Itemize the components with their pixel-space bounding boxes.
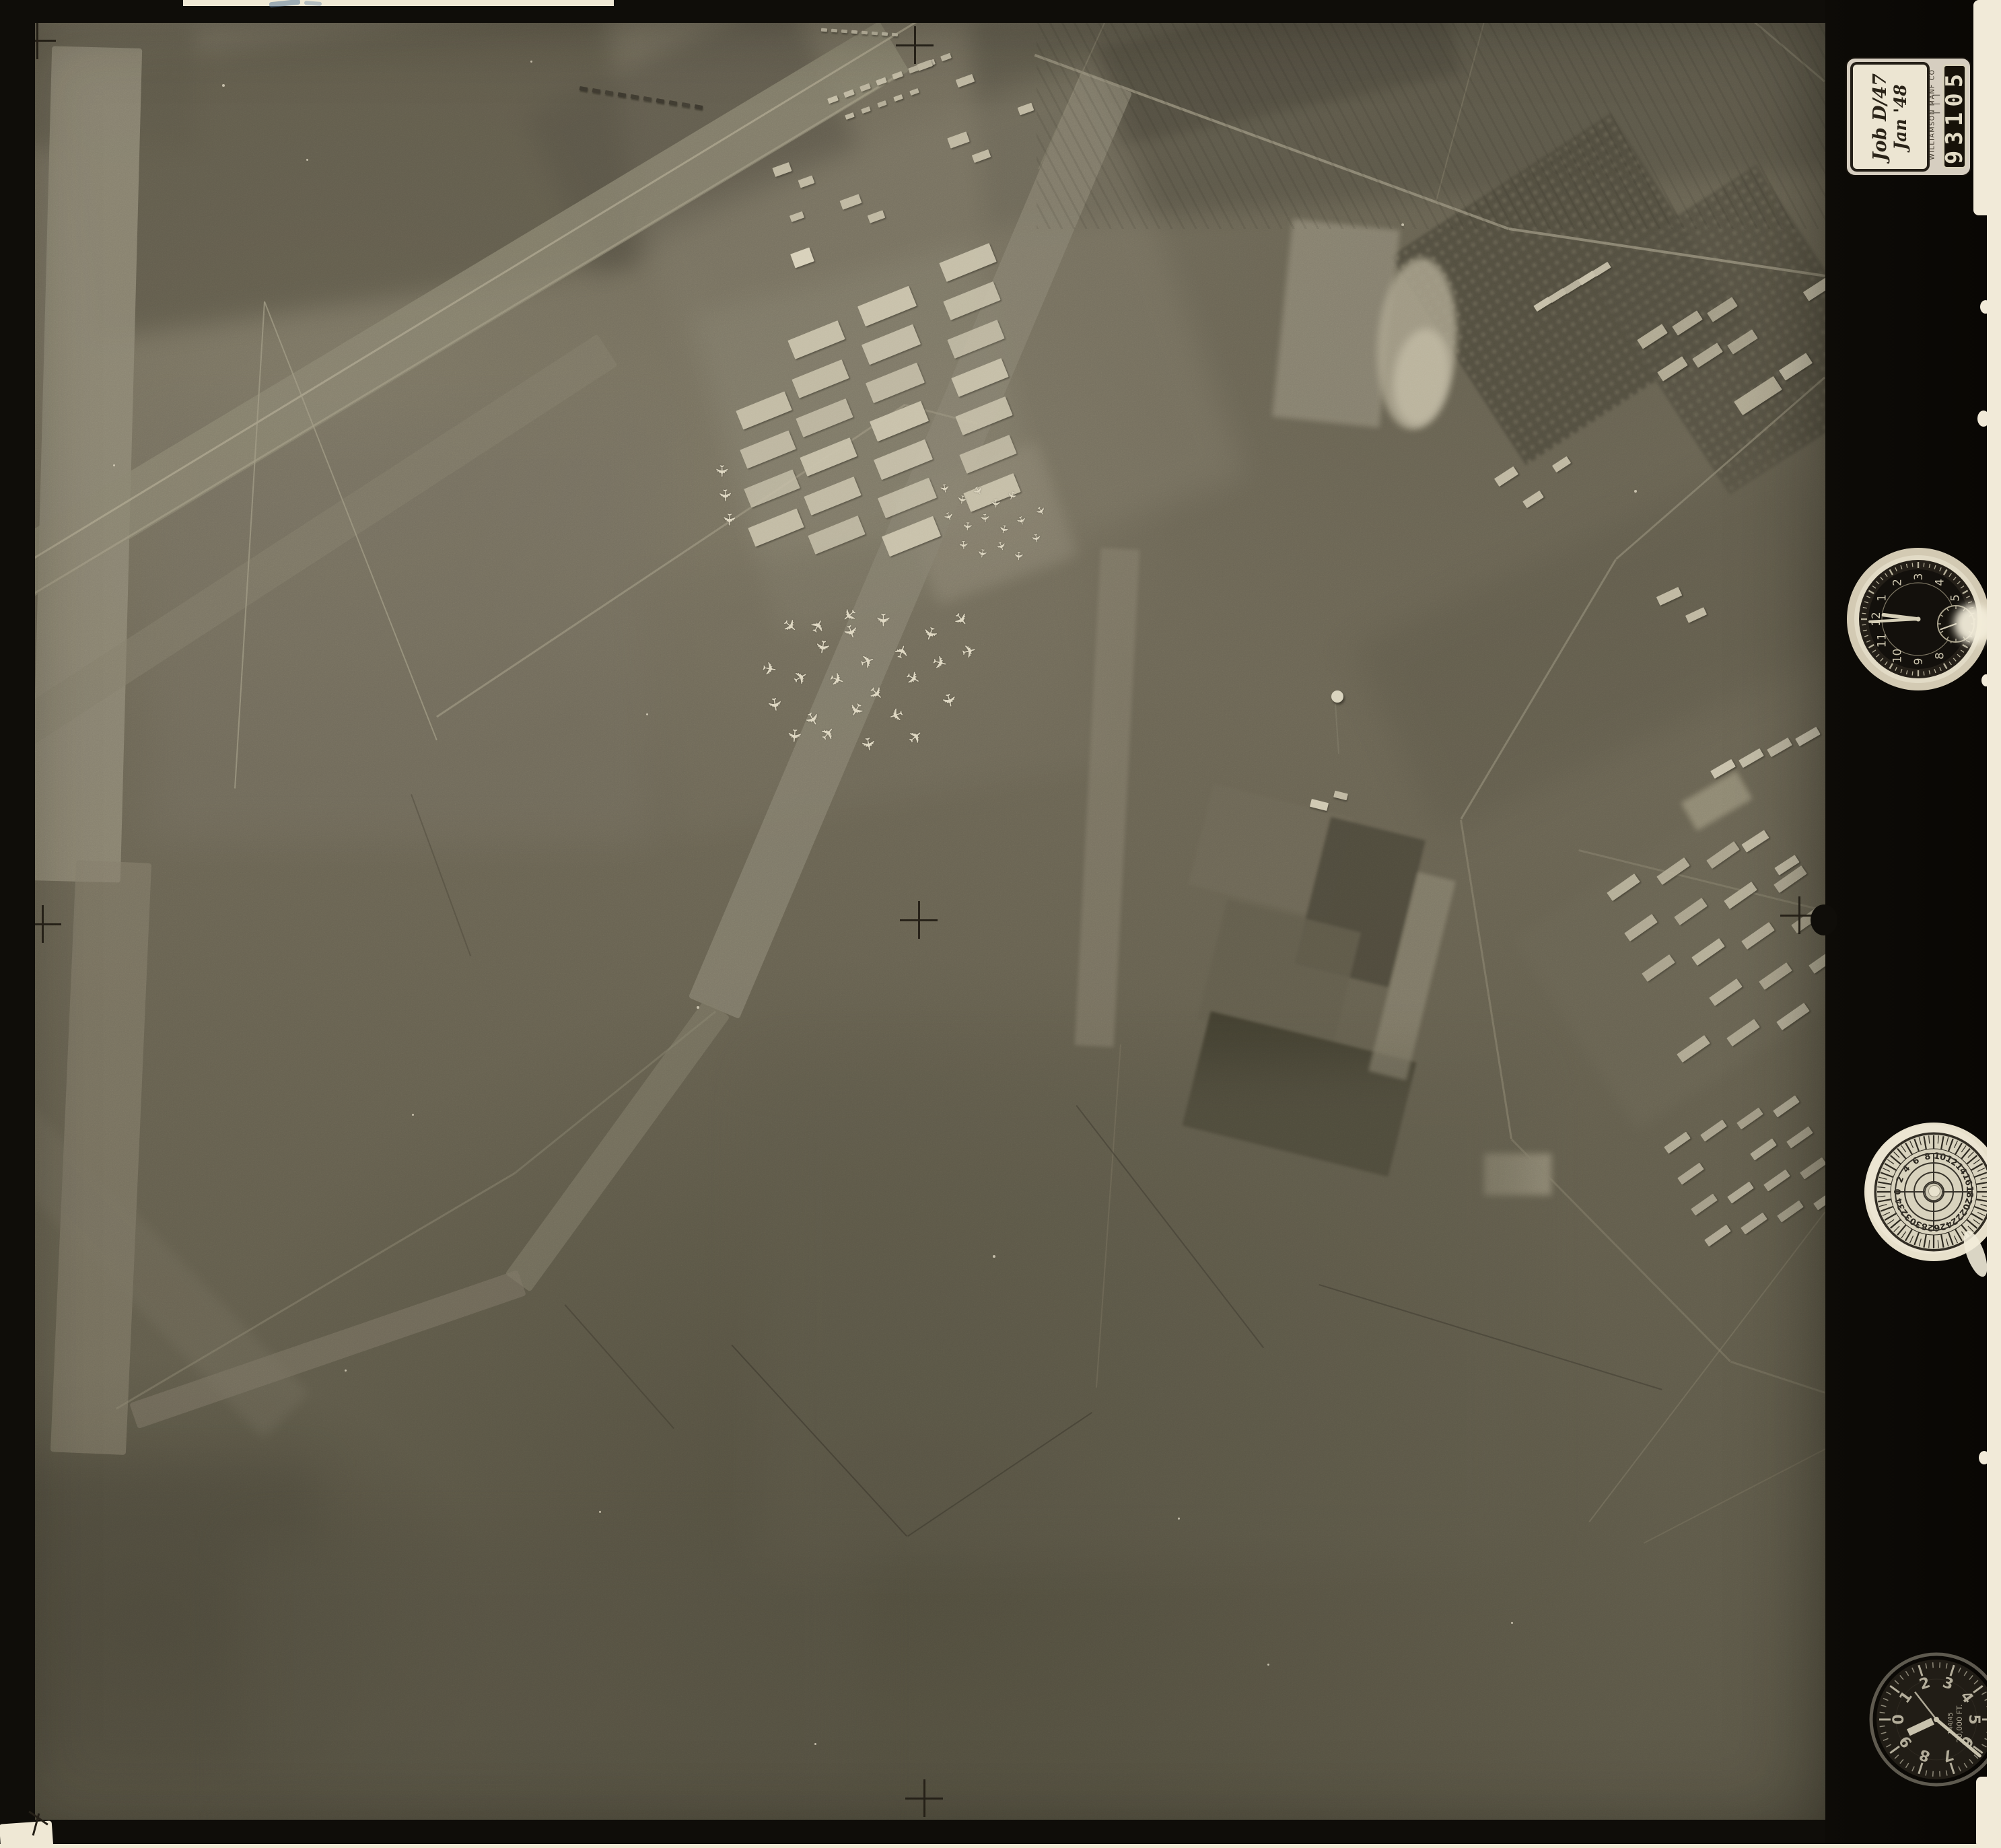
building	[831, 28, 837, 32]
paper-sliver-top	[183, 0, 614, 6]
aircraft-icon: ✈	[764, 696, 783, 713]
aircraft-icon: ✈	[812, 638, 831, 655]
building	[861, 106, 871, 113]
paper-corner-bottom-right	[1976, 1777, 2001, 1848]
terrain-patch	[30, 46, 142, 882]
clock-numeral: 8	[1934, 652, 1947, 660]
building	[1691, 1194, 1718, 1216]
aircraft-icon: ✈	[721, 513, 738, 527]
aircraft-icon: ✈	[954, 494, 967, 505]
scratch-mark	[564, 1304, 674, 1429]
fiducial-cross-icon	[896, 26, 934, 64]
film-border-bottom	[0, 1820, 1825, 1844]
dust-speck	[530, 61, 532, 63]
dust-speck	[993, 1255, 995, 1258]
paper-edge-bump	[1980, 300, 1991, 314]
paper-edge-bump	[1977, 411, 1990, 427]
frame-counter: 93105	[1942, 64, 1967, 169]
building	[1773, 1096, 1800, 1118]
building	[1333, 791, 1348, 801]
building	[1494, 466, 1518, 487]
paper-edge-bump	[1979, 1451, 1990, 1464]
terrain-patch	[757, 1060, 1531, 1565]
terrain-patch	[505, 999, 730, 1292]
aircraft-icon: ✈	[937, 483, 950, 495]
building	[1750, 1139, 1777, 1161]
fiducial-cross-icon	[900, 901, 938, 939]
dust-speck	[697, 1006, 699, 1009]
aircraft-icon: ✈	[989, 499, 1001, 508]
fiducial-bar	[914, 26, 916, 64]
dust-speck	[814, 1743, 816, 1745]
building	[1795, 726, 1821, 746]
ploughed-field-texture	[1037, 0, 1825, 229]
aircraft-icon: ✈	[1028, 533, 1041, 544]
clock-dial: 123456789101112	[1844, 545, 1992, 693]
terrain-patch	[242, 1538, 862, 1827]
building	[845, 112, 855, 119]
aircraft-icon: ✈	[784, 727, 803, 744]
clock-numeral: 4	[1934, 579, 1947, 586]
building	[1700, 1120, 1727, 1142]
aircraft-icon: ✈	[713, 464, 730, 478]
building	[1704, 1225, 1731, 1247]
building	[1813, 1188, 1825, 1211]
level-numeral: 26	[1933, 1221, 1946, 1233]
clock-numeral: 12	[1870, 612, 1883, 627]
building	[871, 31, 877, 35]
job-label-card: Job D/47 Jan '48	[1850, 62, 1930, 172]
building	[893, 94, 903, 101]
dust-speck	[412, 1114, 414, 1116]
building	[1727, 1182, 1754, 1204]
fiducial-bar	[923, 1779, 925, 1817]
fiducial-bar	[1798, 896, 1800, 934]
building	[841, 29, 847, 33]
clock-numeral: 5	[1949, 594, 1963, 602]
dust-speck	[599, 1511, 601, 1513]
film-margin-strip: Job D/47 Jan '48 WILLIAMSON MANF CO | | …	[1825, 0, 1987, 1844]
photo-features-layer: ✈✈✈✈✈✈✈✈✈✈✈✈✈✈✈✈✈✈✈✈✈✈✈✈✈✈✈✈✈✈✈✈✈✈✈✈✈✈✈✈…	[0, 0, 1825, 1844]
dust-speck	[1511, 1622, 1513, 1624]
road-line	[1588, 1212, 1825, 1522]
aircraft-icon: ✈	[956, 540, 968, 550]
building	[820, 28, 827, 32]
clock-numeral: 10	[1891, 649, 1905, 664]
altimeter-numeral: 0	[1891, 1714, 1907, 1724]
aircraft-icon: ✈	[1012, 551, 1023, 561]
fiducial-bar	[36, 22, 38, 59]
dust-speck	[1634, 490, 1637, 493]
altimeter-numeral: 5	[1965, 1714, 1982, 1724]
dust-speck	[1267, 1664, 1269, 1666]
aircraft-icon: ✈	[857, 736, 877, 753]
fiducial-cross-icon	[905, 1779, 943, 1817]
aerial-photograph: ✈✈✈✈✈✈✈✈✈✈✈✈✈✈✈✈✈✈✈✈✈✈✈✈✈✈✈✈✈✈✈✈✈✈✈✈✈✈✈✈…	[0, 0, 1825, 1844]
building	[956, 74, 975, 87]
building	[851, 30, 857, 34]
road-line	[1730, 1361, 1825, 1393]
dust-speck	[306, 159, 308, 161]
building	[1741, 1213, 1767, 1235]
altimeter-dial: 0123456789144/4520,000 FT.	[1862, 1645, 2001, 1793]
water-tower	[1331, 690, 1343, 703]
building	[1736, 1108, 1763, 1130]
aircraft-icon: ✈	[761, 660, 778, 679]
dust-speck	[646, 713, 648, 715]
aerial-photo-sheet: ✈✈✈✈✈✈✈✈✈✈✈✈✈✈✈✈✈✈✈✈✈✈✈✈✈✈✈✈✈✈✈✈✈✈✈✈✈✈✈✈…	[0, 0, 2001, 1848]
job-number-label: Job D/47	[1870, 67, 1891, 168]
building	[1777, 1201, 1804, 1223]
aircraft-icon: ✈	[874, 612, 891, 627]
building	[861, 30, 867, 34]
clock-numeral: 2	[1891, 579, 1905, 586]
building	[909, 87, 919, 95]
building	[1664, 1132, 1691, 1154]
job-date-label: Jan '48	[1891, 67, 1910, 168]
paper-edge-right	[1987, 0, 2001, 1848]
dust-speck	[113, 464, 115, 466]
building	[1552, 456, 1571, 472]
dust-speck	[1178, 1518, 1180, 1520]
building	[1739, 748, 1764, 767]
building	[940, 53, 952, 62]
film-border-bump	[1811, 904, 1837, 935]
fiducial-bar	[42, 905, 44, 943]
building	[881, 32, 887, 36]
index-marks: | | |	[1930, 83, 1941, 123]
building	[1677, 1163, 1704, 1185]
frame-label-plate: Job D/47 Jan '48 WILLIAMSON MANF CO | | …	[1846, 57, 1971, 176]
fiducial-bar	[918, 901, 920, 939]
clock-numeral: 3	[1912, 573, 1926, 581]
paper-corner-bottom-left	[0, 1820, 53, 1848]
aircraft-icon: ✈	[960, 521, 973, 532]
paper-corner-top-right	[1973, 0, 2001, 215]
building	[1767, 737, 1792, 756]
aircraft-icon: ✈	[978, 513, 990, 524]
building	[1763, 1170, 1790, 1192]
terrain-patch	[1351, 442, 1825, 836]
aircraft-icon: ✈	[717, 489, 734, 503]
road-line	[1644, 1448, 1825, 1544]
building	[1800, 1158, 1825, 1180]
building	[1522, 491, 1544, 508]
dust-speck	[222, 84, 225, 87]
bubble-level-dial: 0246810121416182022242628303234	[1860, 1118, 2001, 1266]
building	[877, 100, 887, 107]
road-line	[1335, 704, 1339, 754]
paper-edge-bump	[1981, 674, 1991, 686]
clock-numeral: 1	[1875, 594, 1889, 602]
dust-speck	[345, 1370, 347, 1372]
film-border-left	[0, 0, 35, 1844]
building	[1786, 1127, 1813, 1149]
aircraft-icon: ✈	[975, 548, 987, 559]
clock-numeral: 11	[1875, 633, 1889, 648]
clock-numeral: 9	[1912, 658, 1926, 666]
